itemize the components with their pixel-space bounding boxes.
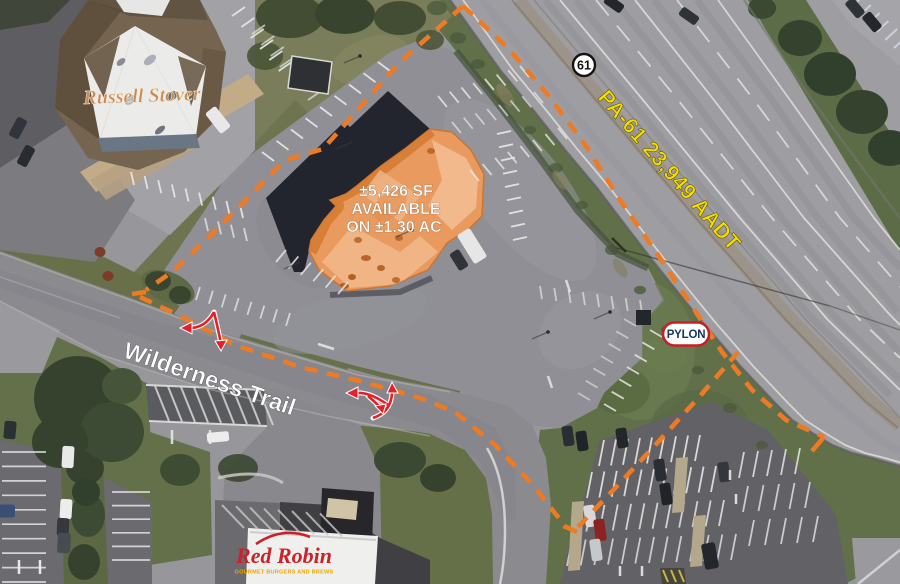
- svg-text:PYLON: PYLON: [667, 329, 706, 341]
- svg-text:AVAILABLE: AVAILABLE: [351, 201, 441, 218]
- svg-text:ON ±1.30 AC: ON ±1.30 AC: [346, 219, 442, 236]
- svg-text:Russell Stover: Russell Stover: [82, 83, 201, 109]
- svg-text:Red Robin: Red Robin: [235, 543, 332, 568]
- svg-text:61: 61: [577, 59, 591, 73]
- svg-text:±5,426 SF: ±5,426 SF: [359, 183, 433, 200]
- svg-text:GOURMET BURGERS AND BREWS: GOURMET BURGERS AND BREWS: [235, 570, 334, 576]
